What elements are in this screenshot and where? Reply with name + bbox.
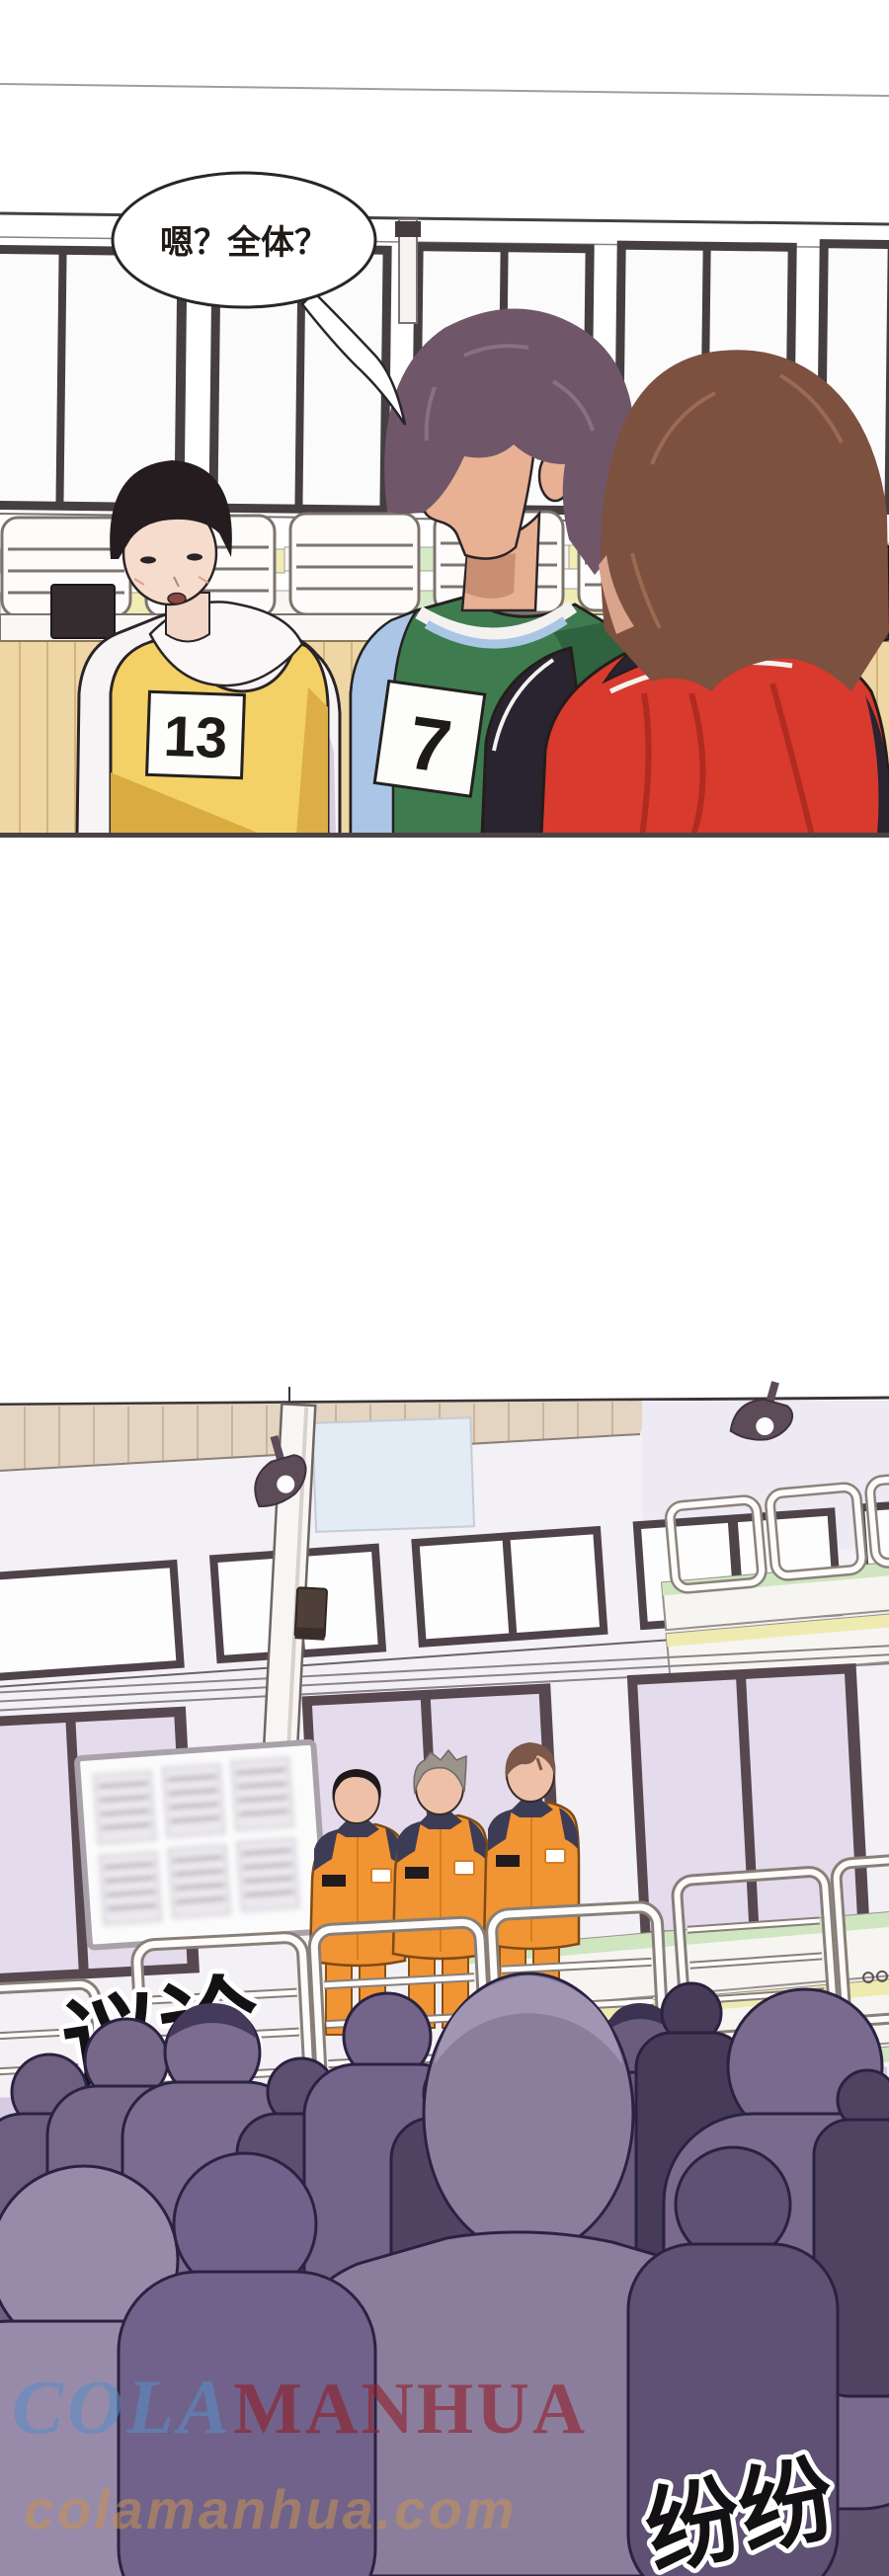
pole-speaker-icon — [294, 1587, 327, 1640]
railing-unit — [290, 514, 419, 614]
speech-bubble-text: 嗯？全体？ — [160, 223, 328, 262]
mouth — [168, 594, 186, 604]
chest-patch-black — [496, 1855, 520, 1867]
comic-page: 13 — [0, 0, 889, 2576]
chest-patch-logo — [545, 1849, 565, 1863]
skylight-window — [312, 1417, 474, 1532]
notice-whiteboard — [77, 1742, 327, 1948]
eye-left — [140, 556, 156, 563]
eye-right — [187, 553, 202, 560]
panel-2-gym-wide-shot: 议论 纷纷 — [0, 1374, 889, 2576]
bib-number-13: 13 — [163, 704, 229, 770]
chest-patch-black — [405, 1867, 429, 1879]
panel-1-gym-scene: 13 — [0, 0, 889, 838]
bib-panel-7: 7 — [374, 682, 485, 797]
bib-panel-13: 13 — [147, 691, 245, 777]
chest-patch-black — [322, 1875, 346, 1887]
chest-patch-logo — [454, 1861, 474, 1875]
speaker-box-left — [51, 585, 115, 638]
panel1-bottom-border — [0, 833, 889, 838]
pole-bracket — [395, 221, 421, 237]
chest-patch-logo — [371, 1869, 391, 1883]
comic-art: 13 — [0, 0, 889, 2576]
